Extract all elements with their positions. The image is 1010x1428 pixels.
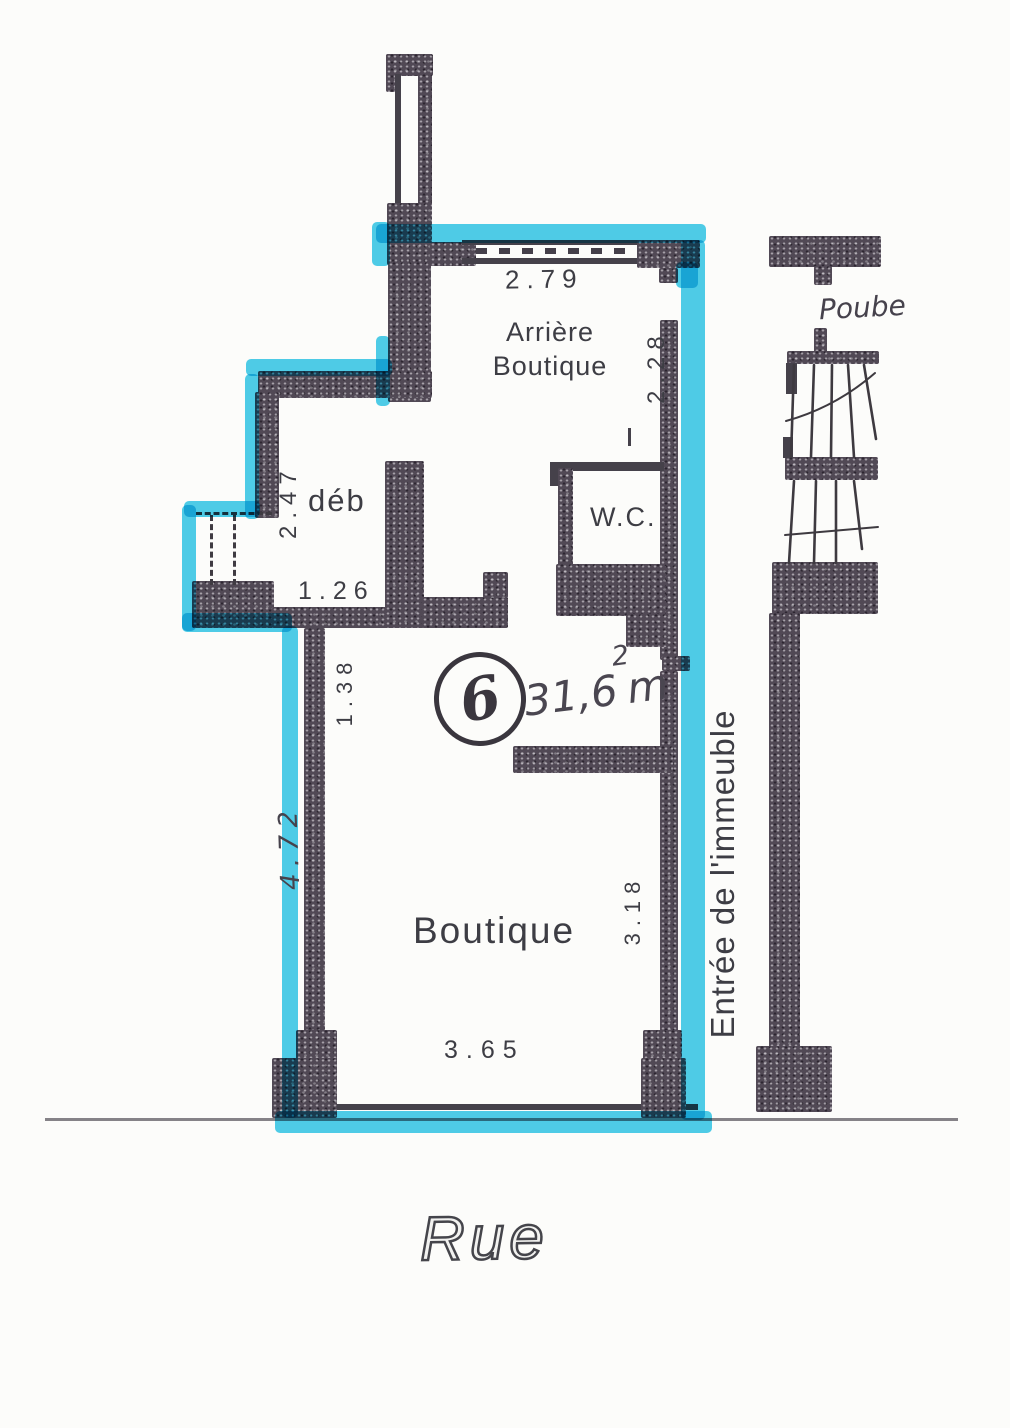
- dim-shopfront-width: 3.65: [444, 1036, 525, 1065]
- shopfront-line: [298, 1104, 698, 1110]
- highlight-shopfront: [275, 1111, 712, 1133]
- wall-wc-left: [558, 468, 573, 576]
- room-label-deb: déb: [308, 483, 366, 519]
- wall-deb-arm: [422, 597, 508, 628]
- dim-upper-left-width: 1.38: [332, 655, 358, 727]
- wall-flue-left-line: [395, 74, 401, 206]
- wall-corridor-right: [769, 613, 800, 1048]
- wall-right-lower: [660, 671, 678, 1050]
- highlight-deb-top: [246, 359, 392, 376]
- street-label: Rue: [419, 1202, 549, 1275]
- room-label-arriere-boutique: Arrière Boutique: [455, 315, 645, 383]
- arriere-label-line2: Boutique: [455, 349, 645, 383]
- highlight-deb-left: [245, 374, 259, 519]
- highlight-top-left-patch: [372, 222, 390, 266]
- pillar-corridor-bottom: [756, 1046, 832, 1112]
- floor-plan-canvas: 2.79 Arrière Boutique 2.28 déb 2.47 1.26…: [0, 0, 1010, 1428]
- closet-dashed-line-2: [233, 515, 236, 585]
- wall-boutique-left: [304, 628, 325, 1052]
- dim-left-side: 4.72: [274, 817, 306, 890]
- wall-wc-step: [626, 614, 667, 647]
- arriere-label-line1: Arrière: [455, 315, 645, 349]
- wall-deb-right: [385, 461, 424, 628]
- closet-dashed-line-1: [210, 515, 213, 585]
- dim-right-side: 3.18: [620, 874, 646, 946]
- room-label-boutique: Boutique: [413, 910, 575, 952]
- pillar-front-right-b: [641, 1058, 686, 1118]
- wall-deb-arm-tab: [483, 572, 508, 598]
- area-value: 31,6: [522, 666, 621, 726]
- area-annotation: 2 31,6m: [522, 659, 671, 725]
- wall-mid-stub: [513, 746, 673, 773]
- dim-deb-opening: 1.26: [298, 577, 375, 606]
- dim-arriere-depth: 2.28: [643, 332, 671, 404]
- wall-stair-bottom: [772, 562, 878, 614]
- window-pane-hatches: [476, 248, 636, 254]
- unit-number-circle: 6: [428, 646, 532, 752]
- staircase-treads: [783, 363, 883, 565]
- wall-neighbour-top: [769, 236, 881, 267]
- room-label-wc: W.C.: [590, 502, 657, 533]
- area-exponent: 2: [610, 640, 631, 673]
- highlight-bottom-left: [182, 613, 292, 632]
- building-entrance-label: Entrée de l'immeuble: [704, 688, 742, 1060]
- highlight-right: [681, 240, 705, 1120]
- highlight-top: [376, 224, 706, 243]
- highlight-right-tab-blob: [676, 262, 698, 288]
- dim-arriere-width: 2.79: [505, 263, 584, 295]
- area-unit: m: [624, 659, 671, 713]
- wall-neighbour-top-tab: [814, 266, 832, 285]
- wall-stair-top-tab: [814, 328, 827, 353]
- wall-flue-right-line: [418, 74, 432, 206]
- dim-deb-depth: 2.47: [275, 467, 303, 539]
- bins-label: Poube: [818, 289, 906, 326]
- unit-number: 6: [453, 662, 507, 737]
- wc-dimension-tick: [628, 428, 631, 446]
- wall-wc-bottom: [556, 564, 666, 616]
